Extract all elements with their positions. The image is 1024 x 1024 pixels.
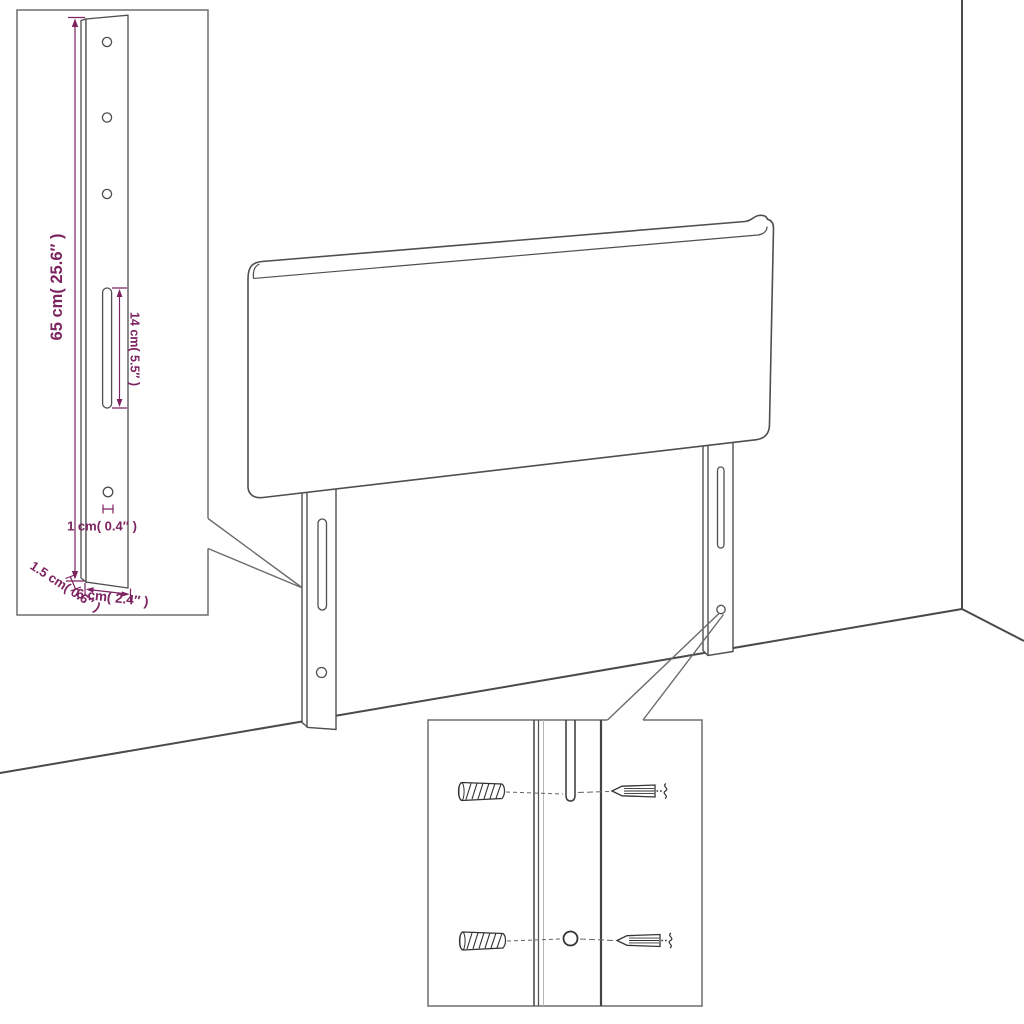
left-leg-hole bbox=[317, 668, 327, 678]
leg-hole-lower bbox=[102, 189, 111, 198]
left-leg-slot bbox=[318, 519, 327, 610]
leg-small-hole bbox=[103, 487, 113, 497]
right-leg-slot bbox=[718, 467, 725, 548]
leg-side-face bbox=[81, 19, 86, 582]
hardware-detail-inset bbox=[428, 720, 702, 1006]
leg-slot bbox=[103, 288, 112, 408]
headboard-assembly-diagram: 65 cm( 25.6″ ) 14 cm( 5.5″ ) 1 cm( 0.4″ … bbox=[0, 0, 1024, 1024]
leg-detail-drawing bbox=[81, 15, 128, 588]
dim-height-label: 65 cm( 25.6″ ) bbox=[48, 234, 66, 341]
floor-line-right bbox=[962, 609, 1024, 641]
dim-hole-label: 1 cm( 0.4″ ) bbox=[67, 519, 137, 534]
diagram-canvas: 65 cm( 25.6″ ) 14 cm( 5.5″ ) 1 cm( 0.4″ … bbox=[0, 0, 1024, 1024]
right-leg-hole bbox=[717, 605, 725, 613]
dim-slot-label: 14 cm( 5.5″ ) bbox=[128, 312, 142, 386]
leg-hole-top bbox=[102, 37, 111, 46]
leader-line bbox=[208, 519, 303, 589]
leg-hole-middle bbox=[102, 113, 111, 122]
left-leg bbox=[302, 482, 336, 730]
inset-background bbox=[428, 720, 702, 1006]
leader-line bbox=[643, 615, 724, 721]
headboard bbox=[248, 215, 774, 497]
leader-line bbox=[208, 549, 303, 589]
leg-detail-inset: 65 cm( 25.6″ ) 14 cm( 5.5″ ) 1 cm( 0.4″ … bbox=[17, 10, 208, 615]
callout-leaders bbox=[208, 519, 724, 721]
headboard-panel bbox=[248, 215, 774, 497]
